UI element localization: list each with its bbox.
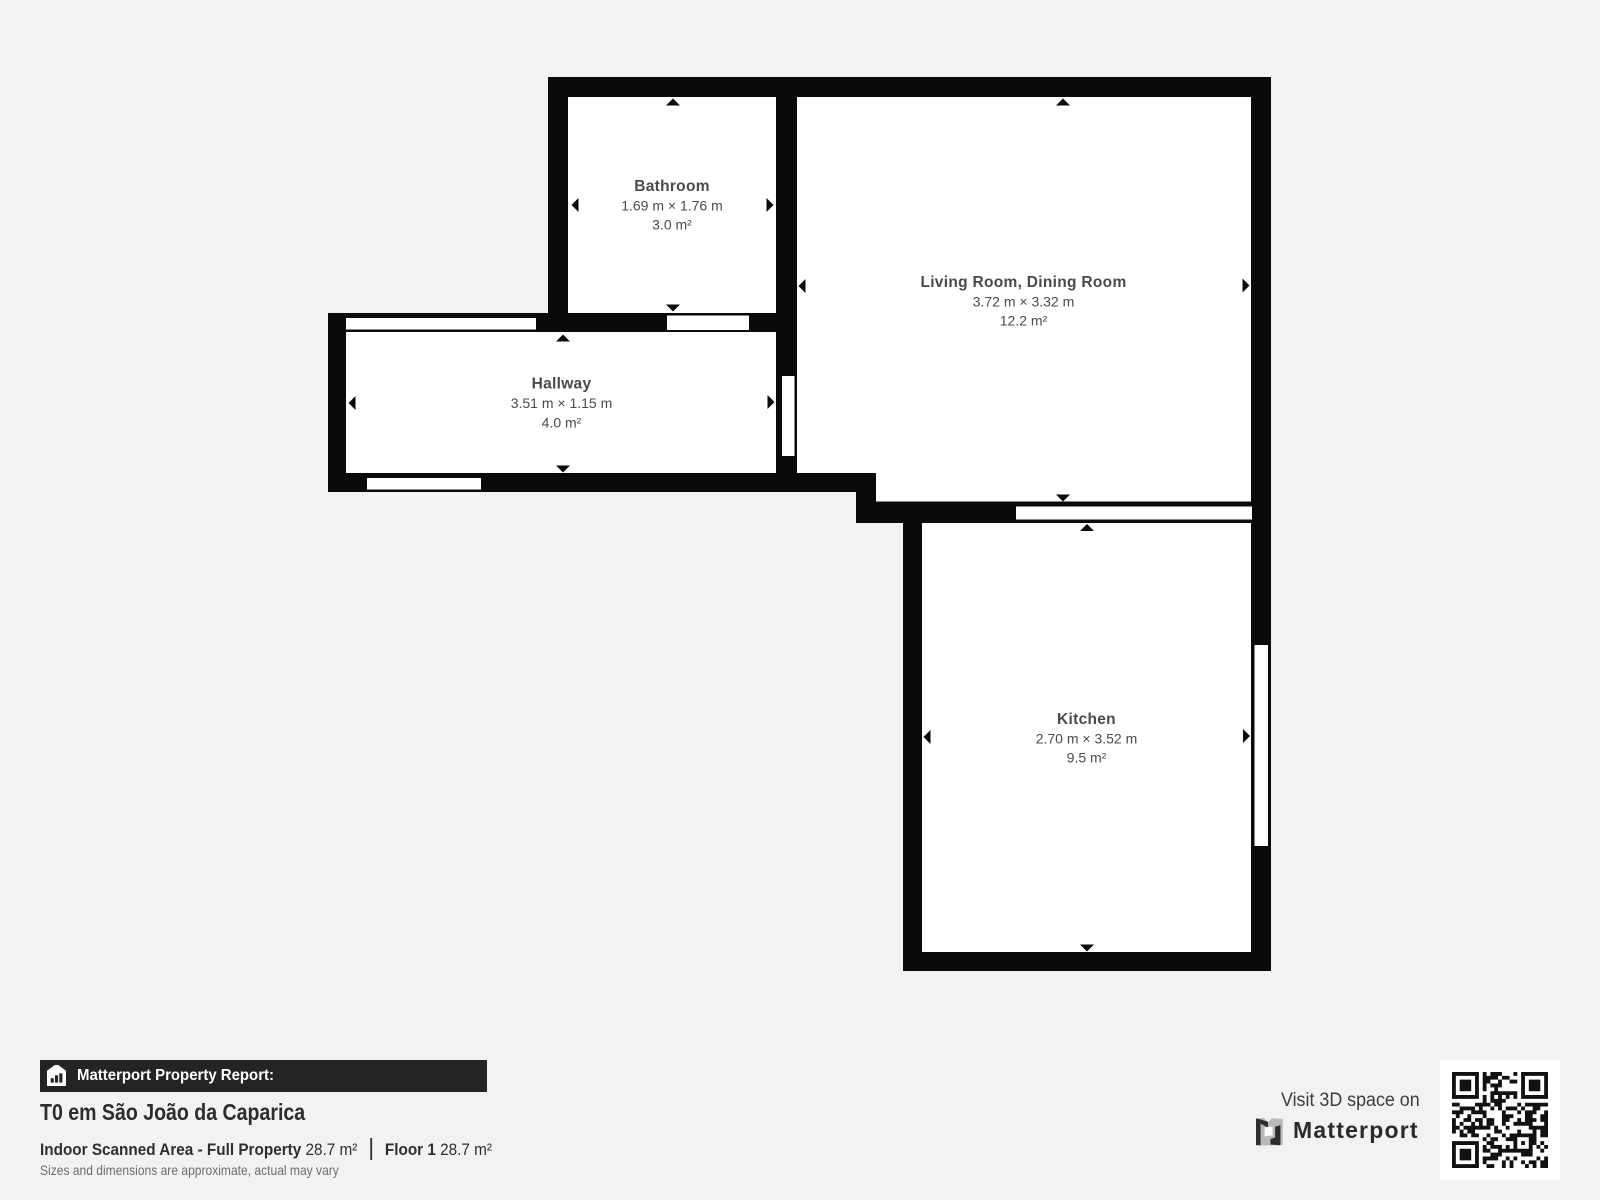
svg-text:Bathroom: Bathroom bbox=[634, 178, 710, 195]
svg-text:Kitchen: Kitchen bbox=[1057, 711, 1116, 728]
svg-text:3.51 m × 1.15 m: 3.51 m × 1.15 m bbox=[511, 395, 613, 411]
svg-text:2.70 m × 3.52 m: 2.70 m × 3.52 m bbox=[1036, 730, 1138, 746]
svg-text:3.0 m²: 3.0 m² bbox=[652, 217, 692, 233]
svg-text:3.72 m × 3.32 m: 3.72 m × 3.32 m bbox=[973, 293, 1075, 309]
svg-text:Hallway: Hallway bbox=[532, 376, 592, 393]
svg-text:9.5 m²: 9.5 m² bbox=[1067, 750, 1107, 766]
svg-text:12.2 m²: 12.2 m² bbox=[1000, 313, 1048, 329]
svg-text:4.0 m²: 4.0 m² bbox=[542, 414, 582, 430]
svg-text:1.69 m × 1.76 m: 1.69 m × 1.76 m bbox=[621, 197, 723, 213]
svg-text:Living Room, Dining Room: Living Room, Dining Room bbox=[920, 274, 1126, 291]
